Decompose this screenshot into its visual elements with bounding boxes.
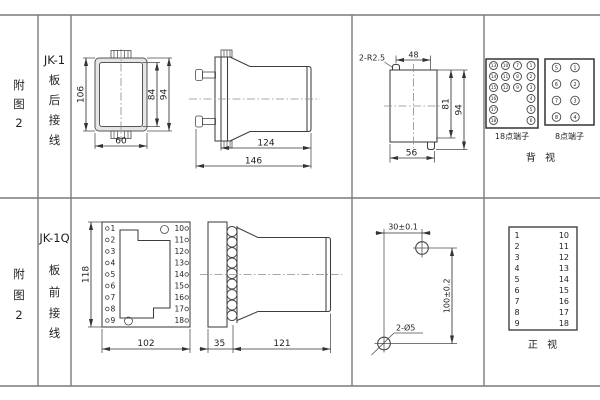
figure-char: 图 — [13, 288, 25, 302]
terminal-number: 18 — [491, 118, 497, 124]
model-name: JK-1 — [43, 53, 65, 67]
terminal-number: 12 — [559, 253, 569, 262]
terminal-number: 12 — [174, 247, 184, 256]
terminal-8pt-label: 8点端子 — [555, 131, 584, 141]
figure-label-top: 附 图 2 — [13, 78, 25, 130]
figure-char: 附 — [13, 267, 25, 281]
terminal-number: 4 — [530, 96, 533, 102]
dim-30: 30±0.1 — [388, 223, 418, 232]
terminal-number: 15 — [559, 286, 569, 295]
dim-48: 48 — [408, 51, 418, 60]
terminal-number: 6 — [530, 118, 533, 124]
side-view-front-drawing: 35 121 — [200, 222, 343, 353]
terminal-number: 6 — [555, 82, 558, 88]
terminal-number: 11 — [503, 74, 509, 80]
model-label-top: JK-1 板 后 接 线 — [43, 53, 65, 147]
terminal-number: 3 — [573, 98, 576, 104]
front-left-terminals: 1 2 3 4 5 6 7 8 9 — [106, 224, 116, 325]
slot-top-left — [393, 65, 400, 71]
terminal-number: 9 — [516, 85, 519, 91]
dim-60: 60 — [115, 137, 127, 147]
terminal-number: 15 — [174, 282, 184, 291]
terminal-number: 2 — [530, 74, 533, 80]
terminal-number: 15 — [491, 85, 497, 91]
rear-view-drawing: 106 84 94 60 — [77, 49, 172, 149]
terminal-number: 4 — [573, 115, 576, 121]
figure-char: 2 — [15, 308, 22, 322]
dim-106: 106 — [77, 86, 87, 103]
terminal-number: 10 — [174, 224, 184, 233]
terminal-18pt-label: 18点端子 — [495, 131, 529, 141]
dim-121: 121 — [273, 339, 290, 349]
screw-comb-bottom — [221, 141, 232, 148]
dim-radius: 2-R2.5 — [359, 54, 385, 63]
terminal-number: 1 — [111, 224, 116, 233]
terminal-number: 9 — [515, 319, 520, 328]
terminal-number: 4 — [111, 259, 116, 268]
terminal-number: 7 — [555, 98, 558, 104]
terminal-number: 1 — [573, 65, 576, 71]
rear-view-label: 背 视 — [526, 151, 558, 164]
panel-cutout-drawing: 2-R2.5 48 81 94 56 — [359, 51, 468, 163]
terminal-number: 6 — [515, 286, 520, 295]
terminal-screws-side — [227, 227, 237, 321]
terminal-number: 12 — [503, 85, 509, 91]
terminal-number: 8 — [555, 115, 558, 121]
dim-84: 84 — [148, 89, 158, 101]
wiring-char: 接 — [49, 113, 61, 127]
dim-holes: 2-Ø5 — [396, 323, 415, 333]
terminal-number: 9 — [111, 316, 116, 325]
wiring-char: 板 — [49, 263, 61, 277]
drawing-sheet: 附 图 2 JK-1 板 后 接 线 106 — [0, 0, 600, 400]
terminal-number: 2 — [515, 242, 520, 251]
wiring-char: 接 — [49, 306, 61, 320]
figure-label-bottom: 附 图 2 — [13, 267, 25, 322]
dim-94: 94 — [160, 89, 170, 101]
dim-102: 102 — [137, 339, 154, 349]
figure-char: 2 — [15, 116, 22, 130]
figure-char: 图 — [13, 97, 25, 111]
terminal-number: 3 — [515, 253, 520, 262]
wiring-char: 板 — [49, 73, 61, 87]
slot-bottom-right — [428, 142, 435, 150]
terminal-number: 7 — [516, 63, 519, 69]
table-right-column: 10 11 12 13 14 15 16 17 18 — [559, 231, 569, 328]
terminal-number: 18 — [559, 319, 569, 328]
terminal-number: 18 — [174, 316, 184, 325]
terminal-number: 1 — [515, 231, 520, 240]
terminal-table: 1 2 3 4 5 6 7 8 9 10 11 12 13 14 15 16 1… — [509, 227, 577, 351]
wiring-char: 前 — [49, 285, 61, 299]
terminal-number: 2 — [573, 82, 576, 88]
dim-81: 81 — [442, 98, 452, 109]
terminal-number: 16 — [174, 293, 184, 302]
dim-124: 124 — [257, 139, 274, 149]
terminal-number: 6 — [111, 282, 116, 291]
terminal-number: 5 — [111, 270, 116, 279]
terminal-number: 8 — [516, 74, 519, 80]
terminal-number: 2 — [111, 236, 116, 245]
terminal-number: 5 — [530, 107, 533, 113]
terminal-number: 16 — [559, 297, 569, 306]
terminal-number: 3 — [111, 247, 116, 256]
model-label-bottom: JK-1Q 板 前 接 线 — [38, 231, 69, 340]
front-view-drawing: 1 2 3 4 5 6 7 8 9 10 11 12 13 14 15 16 1… — [82, 222, 190, 353]
dim-118: 118 — [82, 266, 92, 283]
terminal-number: 11 — [174, 236, 184, 245]
terminal-number: 13 — [174, 259, 184, 268]
figure-char: 附 — [13, 78, 25, 92]
model-name: JK-1Q — [38, 231, 69, 245]
terminal-number: 10 — [503, 63, 509, 69]
dim-100: 100±0.2 — [442, 278, 451, 313]
terminal-number: 10 — [559, 231, 569, 240]
terminal-number: 13 — [559, 264, 569, 273]
terminal-8pt: 5 6 7 8 1 2 3 4 8点端子 — [545, 59, 594, 141]
mount-hole-top — [161, 226, 169, 234]
terminal-number: 11 — [559, 242, 569, 251]
dim-94-cutout: 94 — [455, 104, 465, 116]
terminal-number: 5 — [515, 275, 520, 284]
terminal-number: 7 — [515, 297, 520, 306]
terminal-number: 16 — [491, 96, 497, 102]
dim-56: 56 — [406, 149, 418, 159]
front-right-terminals: 10 11 12 13 14 15 16 17 18 — [174, 224, 188, 325]
terminal-18pt: 13 14 15 16 17 18 10 11 12 7 8 9 1 2 3 4… — [486, 59, 538, 141]
wiring-char: 后 — [49, 93, 61, 107]
terminal-number: 17 — [491, 107, 497, 113]
inner-cover-outline — [120, 230, 170, 318]
wiring-char: 线 — [49, 133, 61, 147]
screw-comb-top — [221, 50, 232, 57]
terminal-number: 3 — [530, 85, 533, 91]
terminal-number: 17 — [559, 308, 569, 317]
dim-146: 146 — [245, 157, 262, 167]
table-left-column: 1 2 3 4 5 6 7 8 9 — [515, 231, 520, 328]
front-view-label: 正 视 — [528, 338, 560, 351]
terminal-number: 5 — [555, 65, 558, 71]
side-view-rear-drawing: 124 146 — [189, 50, 320, 169]
terminal-number: 14 — [559, 275, 569, 284]
terminal-number: 14 — [491, 74, 497, 80]
terminal-number: 17 — [174, 305, 184, 314]
terminal-number: 7 — [111, 293, 116, 302]
terminal-number: 8 — [111, 305, 116, 314]
terminal-number: 1 — [530, 63, 533, 69]
wiring-char: 线 — [49, 326, 61, 340]
terminal-number: 13 — [491, 63, 497, 69]
dim-35: 35 — [214, 339, 225, 349]
terminal-number: 14 — [174, 270, 184, 279]
terminal-number: 8 — [515, 308, 520, 317]
terminal-number: 4 — [515, 264, 520, 273]
drilling-plan-drawing: 30±0.1 100±0.2 2-Ø5 — [372, 223, 458, 356]
